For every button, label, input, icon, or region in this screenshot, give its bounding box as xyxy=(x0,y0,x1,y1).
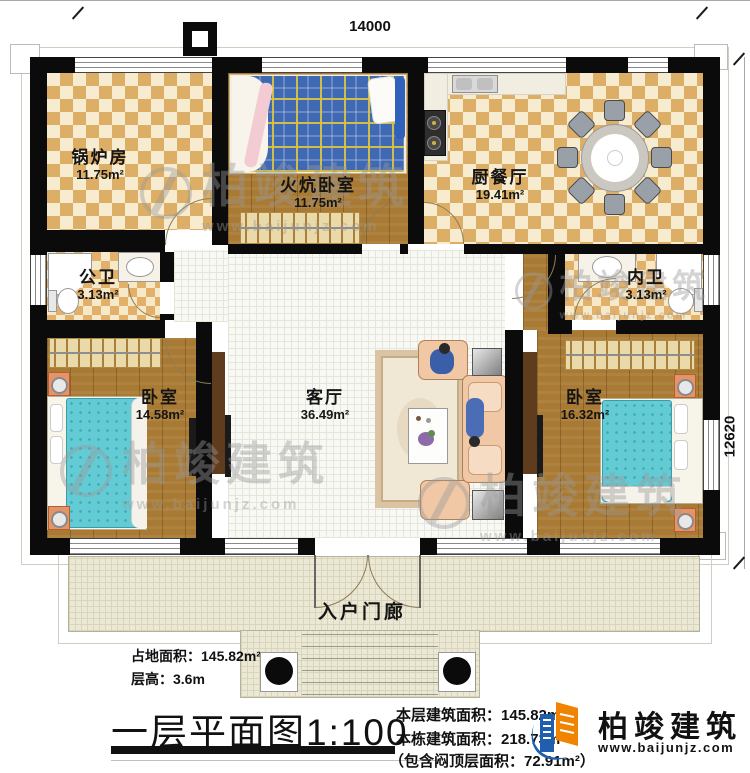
dimension-line-right xyxy=(744,57,745,569)
stat-land-area: 占地面积：145.82m² xyxy=(131,645,261,668)
room-name: 锅炉房 xyxy=(45,148,155,168)
bed-pillow xyxy=(674,440,688,470)
dining-table-center xyxy=(607,150,623,166)
dimension-tick xyxy=(72,6,84,19)
stat-value: 145.82m² xyxy=(201,648,261,664)
floorplan-canvas: 14000 12620 xyxy=(0,0,750,773)
porch-column xyxy=(265,657,293,685)
window xyxy=(437,538,527,555)
chimney xyxy=(183,22,217,56)
room-name: 内卫 xyxy=(600,268,692,288)
room-name: 入户门廊 xyxy=(302,602,422,624)
dimension-line-top xyxy=(0,0,750,1)
room-area: 14.58m² xyxy=(105,408,215,423)
table-flowers xyxy=(428,430,435,437)
nightstand xyxy=(674,374,696,398)
stat-label: （包含闷顶层面积： xyxy=(389,753,524,770)
dimension-height-label: 12620 xyxy=(722,402,739,472)
window xyxy=(262,57,362,73)
window xyxy=(703,420,720,490)
sofa-cushion xyxy=(468,445,502,475)
wardrobe-bedroom-right xyxy=(565,340,695,370)
room-name: 卧室 xyxy=(105,388,215,408)
wall-bath-public-right xyxy=(160,314,174,320)
tv-bedroom-left xyxy=(189,418,196,476)
room-name: 火炕卧室 xyxy=(258,176,378,196)
dining-chair xyxy=(557,147,578,168)
wall-under-bath-private xyxy=(548,320,572,334)
person-lying xyxy=(466,398,484,438)
stat-floor-height: 层高：3.6m xyxy=(131,668,205,691)
armchair xyxy=(420,480,470,520)
wall-boiler-kang xyxy=(212,73,228,245)
bed-pillow xyxy=(50,436,63,464)
dimension-tick xyxy=(696,6,708,19)
stove-burner-flame xyxy=(432,141,436,145)
table-item xyxy=(426,418,431,423)
wall-living-bed-right xyxy=(505,330,523,538)
window xyxy=(225,538,298,555)
side-table xyxy=(472,348,502,376)
room-label-kitchen: 厨餐厅 19.41m² xyxy=(445,168,555,202)
stat-label: 本栋建筑面积： xyxy=(396,731,501,748)
person-head xyxy=(469,436,480,447)
person-head xyxy=(439,343,450,354)
wall-kang-kitchen xyxy=(408,73,424,244)
stat-label: 占地面积： xyxy=(131,648,201,664)
room-area: 3.13m² xyxy=(54,288,142,303)
window xyxy=(560,538,660,555)
dining-chair xyxy=(604,100,625,121)
wall-under-kang xyxy=(400,244,408,254)
dining-chair xyxy=(604,194,625,215)
room-label-bath-private: 内卫 3.13m² xyxy=(600,268,692,302)
bed-pillow xyxy=(674,404,688,434)
entry-door-panel xyxy=(419,555,421,608)
room-area: 16.32m² xyxy=(530,408,640,423)
room-label-bedroom-right: 卧室 16.32m² xyxy=(530,388,640,422)
window xyxy=(70,538,180,555)
window xyxy=(30,255,47,305)
table-item xyxy=(416,416,421,421)
room-area: 19.41m² xyxy=(445,188,555,203)
bed-blanket-fold xyxy=(602,486,672,502)
room-name: 卧室 xyxy=(530,388,640,408)
wall-under-bath-private xyxy=(616,320,703,334)
title-underline xyxy=(111,746,395,754)
window xyxy=(628,57,668,73)
room-label-living: 客厅 36.49m² xyxy=(270,388,380,422)
wall-under-bath-public xyxy=(30,320,165,338)
room-name: 客厅 xyxy=(270,388,380,408)
stat-label: 层高： xyxy=(131,671,173,687)
nightstand xyxy=(48,372,70,396)
room-area: 11.75m² xyxy=(45,168,155,183)
wall-left xyxy=(30,57,47,555)
room-name: 公卫 xyxy=(54,268,142,288)
wardrobe-kang xyxy=(240,212,360,244)
room-label-bath-public: 公卫 3.13m² xyxy=(54,268,142,302)
nightstand xyxy=(674,508,696,532)
porch-column xyxy=(443,657,471,685)
wardrobe-bedroom-left xyxy=(49,338,161,368)
tv-living xyxy=(225,415,231,477)
side-table xyxy=(472,490,504,520)
wall-under-kang xyxy=(228,244,362,254)
entry-steps xyxy=(302,634,438,696)
tv-bedroom-right xyxy=(537,415,543,477)
room-area: 11.75m² xyxy=(258,196,378,211)
brand-url: www.baijunjz.com xyxy=(598,740,734,755)
kitchen-sink-basin xyxy=(477,78,493,90)
window xyxy=(75,57,212,73)
room-label-boiler: 锅炉房 11.75m² xyxy=(45,148,155,182)
dimension-width-label: 14000 xyxy=(330,18,410,35)
room-label-porch: 入户门廊 xyxy=(302,602,422,624)
room-area: 3.13m² xyxy=(600,288,692,303)
dining-chair xyxy=(651,147,672,168)
stat-value: 3.6m xyxy=(173,671,205,687)
stat-label: 本层建筑面积： xyxy=(396,707,501,724)
entry-door-panel xyxy=(314,555,316,608)
window xyxy=(428,57,566,73)
room-name: 厨餐厅 xyxy=(445,168,555,188)
wall-bath-public-right xyxy=(160,252,174,282)
kitchen-sink-basin xyxy=(456,78,472,90)
nightstand xyxy=(48,506,70,530)
kang-bed-fold xyxy=(395,77,405,139)
entry-door-opening xyxy=(315,538,420,555)
room-label-kang: 火炕卧室 11.75m² xyxy=(258,176,378,210)
floor-corridor-left xyxy=(174,250,228,322)
room-area: 36.49m² xyxy=(270,408,380,423)
stove-burner-flame xyxy=(432,121,436,125)
brand-logo-icon xyxy=(526,698,590,764)
window xyxy=(703,255,720,305)
room-label-bedroom-left: 卧室 14.58m² xyxy=(105,388,215,422)
wall-under-kitchen xyxy=(464,244,703,254)
toilet-tank xyxy=(694,288,703,312)
wall-under-boiler xyxy=(47,230,165,252)
bed-pillow xyxy=(50,404,63,432)
